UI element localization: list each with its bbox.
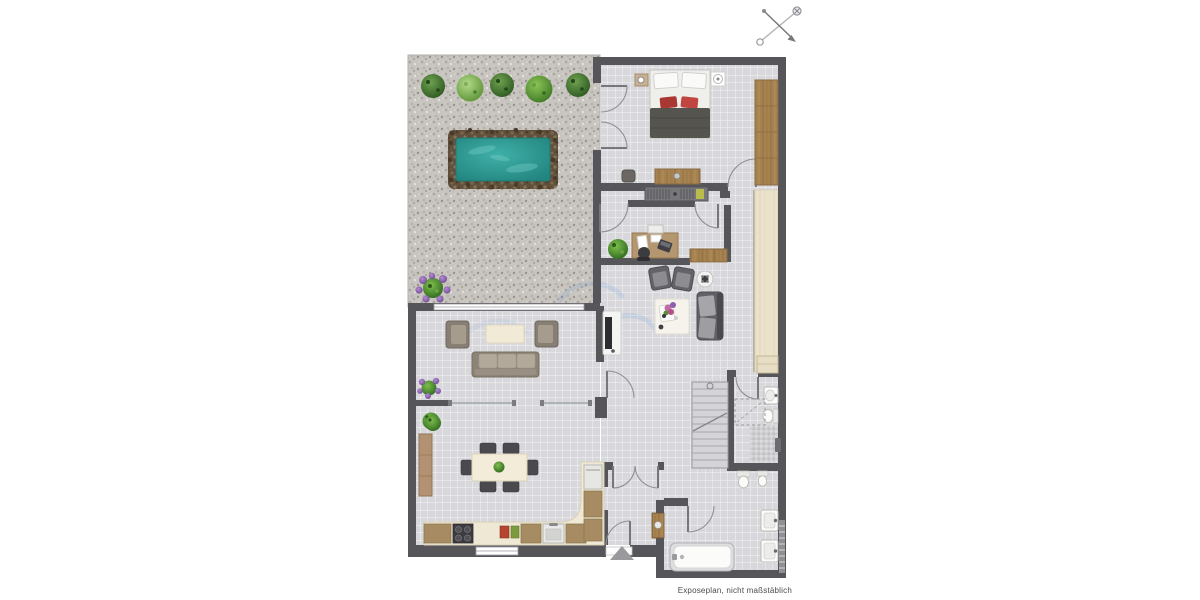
bed-blanket [650, 108, 710, 138]
faucet-icon [774, 549, 777, 552]
wood-floor-strip [755, 190, 778, 372]
drain-icon [680, 555, 684, 559]
floorplan-drawing [0, 0, 1200, 600]
oven [584, 465, 602, 489]
red-pillow [680, 96, 698, 109]
cooktop [453, 524, 473, 543]
lamp-icon [638, 77, 644, 83]
plan-disclaimer: Exposeplan, nicht maßstäblich [678, 586, 792, 595]
papers [637, 235, 648, 248]
garden [408, 55, 600, 307]
lowboard [690, 249, 727, 262]
compass-icon [757, 7, 801, 45]
bidet [757, 471, 768, 486]
sofa [472, 352, 539, 377]
window-kitchen-wall [476, 547, 518, 555]
clothes-item [696, 189, 704, 199]
sideboard [419, 434, 432, 496]
bathtub [670, 543, 734, 571]
shower-mosaic-floor [750, 425, 778, 462]
red-pillow [660, 96, 678, 109]
green-plant [425, 415, 441, 431]
coffee-table [486, 325, 524, 343]
stairwell [692, 382, 728, 468]
rug-with-flowers [655, 299, 689, 334]
washbasin [761, 510, 778, 531]
north-arrowhead [788, 35, 797, 42]
cabinet [757, 356, 778, 373]
cutting-board-green [511, 526, 519, 538]
sofa-dark [697, 292, 723, 340]
tv-icon [605, 317, 612, 349]
armchair [535, 321, 558, 347]
cutting-board-red [500, 526, 509, 538]
faucet-icon [774, 519, 777, 522]
vanity [652, 513, 664, 538]
faucet-icon [775, 394, 778, 397]
pool [448, 128, 558, 190]
floorplan-canvas: Exposeplan, nicht maßstäblich [0, 0, 1200, 600]
pillow [654, 72, 679, 89]
staircase [692, 382, 728, 468]
stool [622, 170, 635, 182]
papers [651, 235, 661, 242]
sink [543, 523, 564, 543]
printer [648, 225, 663, 233]
armchair [671, 266, 695, 291]
closet-corridor [645, 187, 708, 201]
table-plant [494, 462, 505, 473]
plant [608, 239, 628, 259]
pillow [681, 72, 706, 89]
tv-lowboard [603, 311, 621, 355]
towel-radiator [779, 520, 785, 573]
toilet [737, 471, 750, 488]
armchair [446, 321, 469, 348]
dresser-knob [674, 173, 680, 179]
wardrobe [755, 80, 778, 185]
shower-column [775, 438, 781, 452]
armchair [648, 265, 672, 290]
faucet-icon [549, 523, 558, 526]
window-garden-wall [434, 304, 584, 310]
washbasin [761, 540, 778, 562]
faucet-icon [672, 554, 677, 560]
